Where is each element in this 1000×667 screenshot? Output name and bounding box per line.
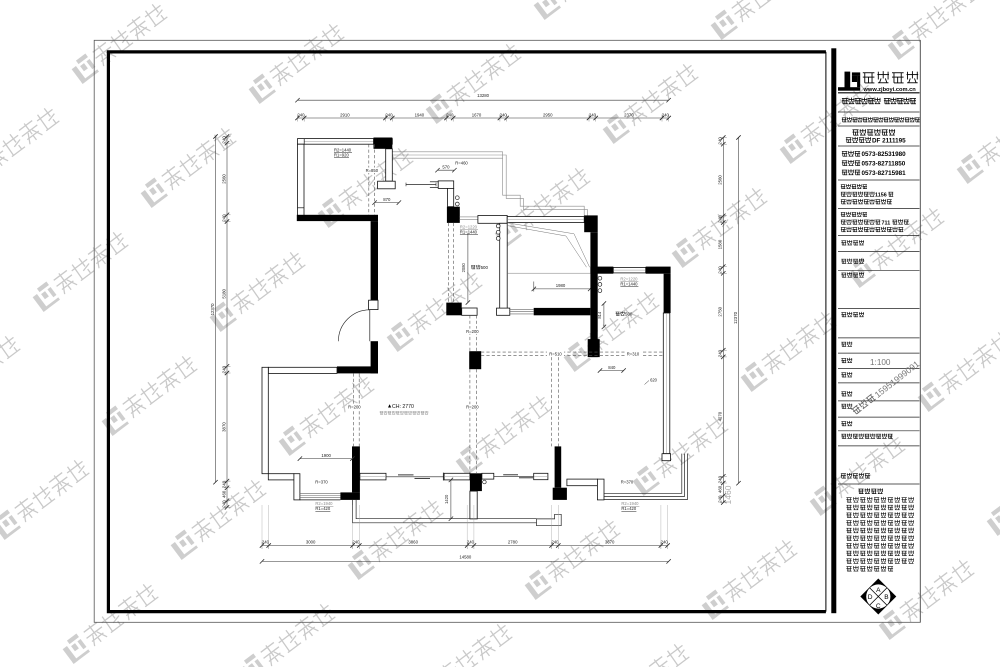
- svg-text:240: 240: [718, 495, 723, 503]
- svg-text:R=370: R=370: [621, 480, 634, 485]
- svg-text:R=310: R=310: [627, 351, 640, 356]
- svg-text:1580: 1580: [718, 239, 723, 249]
- svg-text:570: 570: [442, 165, 450, 170]
- svg-text:CH: 2770: CH: 2770: [392, 404, 414, 410]
- svg-text:R=370: R=370: [315, 480, 328, 485]
- svg-text:3000: 3000: [306, 540, 316, 545]
- svg-text:3670: 3670: [605, 540, 615, 545]
- svg-text:814: 814: [597, 311, 602, 319]
- svg-text:2910: 2910: [340, 112, 350, 117]
- svg-text:R1=420: R1=420: [315, 506, 330, 511]
- svg-text:460: 460: [718, 485, 723, 493]
- svg-text:13280: 13280: [477, 93, 490, 98]
- svg-text:240: 240: [718, 349, 723, 357]
- svg-text:4270: 4270: [718, 411, 723, 421]
- svg-text:14580: 14580: [459, 554, 472, 559]
- svg-text:500: 500: [481, 265, 489, 270]
- svg-text:0573-82711850: 0573-82711850: [862, 161, 906, 168]
- svg-text:460: 460: [221, 490, 226, 498]
- svg-text:0573-82715981: 0573-82715981: [862, 170, 907, 177]
- svg-text:2950: 2950: [543, 112, 553, 117]
- svg-text:R1=1440: R1=1440: [620, 282, 638, 287]
- svg-text:2370: 2370: [624, 112, 634, 117]
- svg-text:840: 840: [608, 365, 616, 370]
- svg-text:500: 500: [625, 312, 633, 317]
- svg-text:5180: 5180: [221, 288, 226, 298]
- svg-text:240: 240: [718, 137, 723, 145]
- svg-text:240: 240: [221, 365, 226, 373]
- svg-text:240: 240: [352, 540, 360, 545]
- svg-text:711: 711: [882, 220, 891, 226]
- svg-text:R=200: R=200: [466, 329, 479, 334]
- svg-text:R1=1440: R1=1440: [460, 230, 478, 235]
- svg-text:870: 870: [383, 197, 391, 202]
- svg-text:1940: 1940: [415, 112, 425, 117]
- svg-text:240: 240: [718, 266, 723, 274]
- svg-text:www.zjboyi.com.cn: www.zjboyi.com.cn: [863, 87, 917, 93]
- svg-text:240: 240: [385, 112, 393, 117]
- svg-text:1670: 1670: [472, 112, 482, 117]
- svg-text:2560: 2560: [718, 175, 723, 185]
- svg-text:2080: 2080: [461, 263, 466, 273]
- svg-text:B: B: [884, 594, 889, 601]
- svg-text:240: 240: [589, 112, 597, 117]
- svg-text:R=200: R=200: [466, 405, 479, 410]
- svg-text:240: 240: [467, 540, 475, 545]
- svg-text:2560: 2560: [221, 174, 226, 184]
- svg-text:240: 240: [446, 112, 454, 117]
- svg-text:2780: 2780: [508, 540, 518, 545]
- svg-text:240: 240: [661, 540, 669, 545]
- svg-text:240: 240: [262, 540, 270, 545]
- svg-text:1156: 1156: [875, 193, 887, 199]
- svg-text:0573-82531980: 0573-82531980: [862, 151, 907, 158]
- svg-text:R=460: R=460: [455, 161, 468, 166]
- svg-text:240: 240: [551, 540, 559, 545]
- svg-text:A: A: [876, 587, 881, 594]
- svg-text:1:100: 1:100: [870, 358, 891, 367]
- svg-text:R1=420: R1=420: [621, 506, 636, 511]
- svg-text:R1=920: R1=920: [334, 153, 349, 158]
- svg-text:240: 240: [718, 475, 723, 483]
- svg-text:R=510: R=510: [549, 351, 562, 356]
- svg-text:240: 240: [221, 214, 226, 222]
- svg-text:620: 620: [650, 377, 658, 382]
- svg-text:1900: 1900: [321, 453, 331, 458]
- svg-text:3870: 3870: [221, 422, 226, 432]
- svg-text:1980: 1980: [556, 283, 566, 288]
- svg-text:240: 240: [221, 500, 226, 508]
- svg-text:12370: 12370: [210, 303, 215, 316]
- svg-text:2750: 2750: [718, 306, 723, 316]
- svg-text:12370: 12370: [733, 311, 738, 324]
- svg-text:3860: 3860: [408, 540, 418, 545]
- svg-text:1420: 1420: [444, 494, 449, 504]
- svg-text:240: 240: [500, 112, 508, 117]
- svg-text:R=850: R=850: [366, 168, 379, 173]
- svg-text:240: 240: [297, 112, 305, 117]
- svg-text:240: 240: [718, 215, 723, 223]
- svg-text:240: 240: [221, 480, 226, 488]
- svg-text:C: C: [876, 603, 881, 610]
- svg-text:240: 240: [221, 136, 226, 144]
- svg-text:240: 240: [662, 112, 670, 117]
- svg-text:D: D: [868, 594, 873, 601]
- svg-text:R=200: R=200: [348, 405, 361, 410]
- svg-text:DF 2111195: DF 2111195: [872, 137, 906, 144]
